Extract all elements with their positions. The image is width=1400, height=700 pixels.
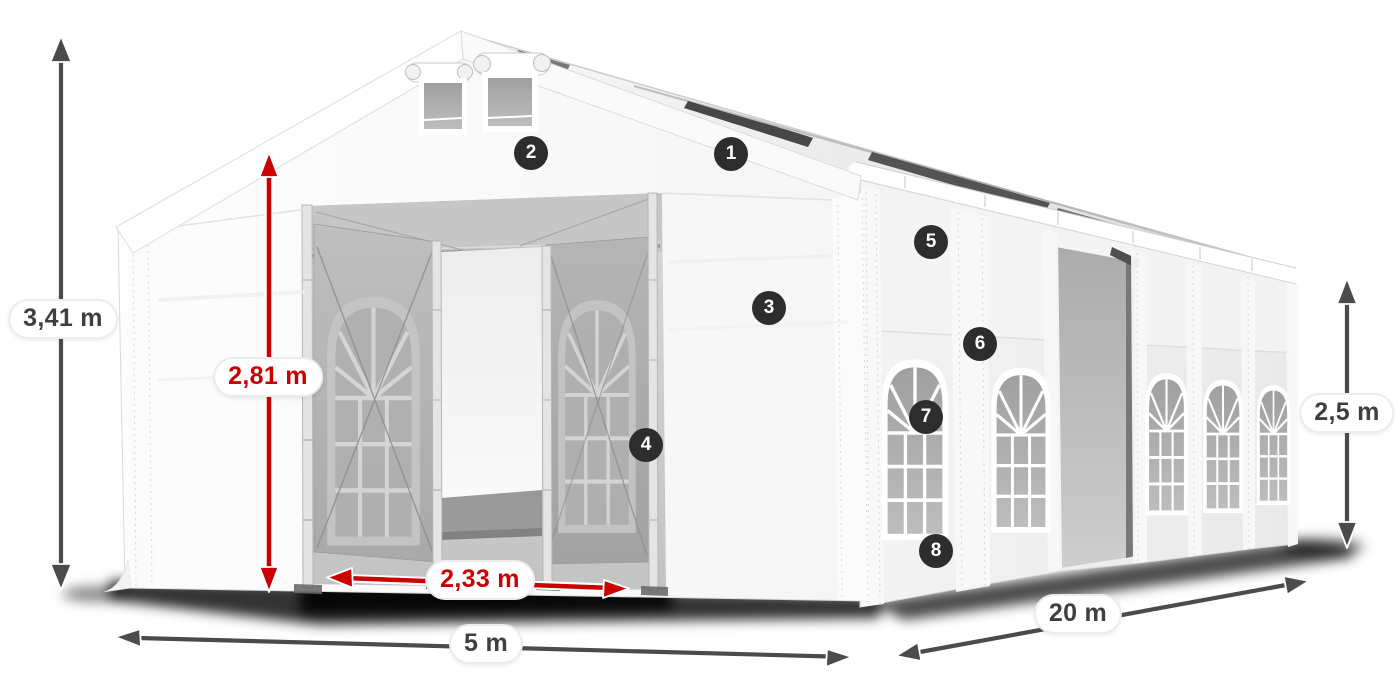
callout-badge-3: 3 — [752, 291, 786, 325]
callout-badge-4: 4 — [629, 428, 663, 462]
tent-illustration — [0, 0, 1400, 700]
callout-badge-8: 8 — [919, 534, 953, 568]
dimension-label-door-height: 2,81 m — [215, 359, 321, 395]
tent-dimension-diagram: 3,41 m 2,81 m 2,33 m 5 m 20 m 2,5 m 1 2 … — [0, 0, 1400, 700]
callout-badge-5: 5 — [914, 225, 948, 259]
callout-badge-6: 6 — [963, 327, 997, 361]
side-window — [1257, 385, 1290, 505]
callout-badge-1: 1 — [714, 137, 748, 171]
door-panel-right — [546, 237, 650, 564]
side-door-opening — [1056, 247, 1140, 568]
callout-badge-2: 2 — [514, 136, 548, 170]
side-window — [882, 359, 949, 540]
dimension-label-front-width: 5 m — [451, 626, 521, 662]
callout-badge-7: 7 — [909, 400, 943, 434]
dimension-label-side-length: 20 m — [1036, 596, 1120, 632]
side-window — [1203, 380, 1243, 513]
door-panel-left — [314, 224, 437, 562]
dimension-label-door-width: 2,33 m — [427, 562, 533, 598]
dimension-label-total-height: 3,41 m — [10, 301, 116, 337]
side-window — [1145, 373, 1187, 515]
front-door-opening — [294, 193, 668, 596]
dimension-label-side-wall-height: 2,5 m — [1301, 395, 1392, 431]
side-window — [991, 368, 1050, 533]
